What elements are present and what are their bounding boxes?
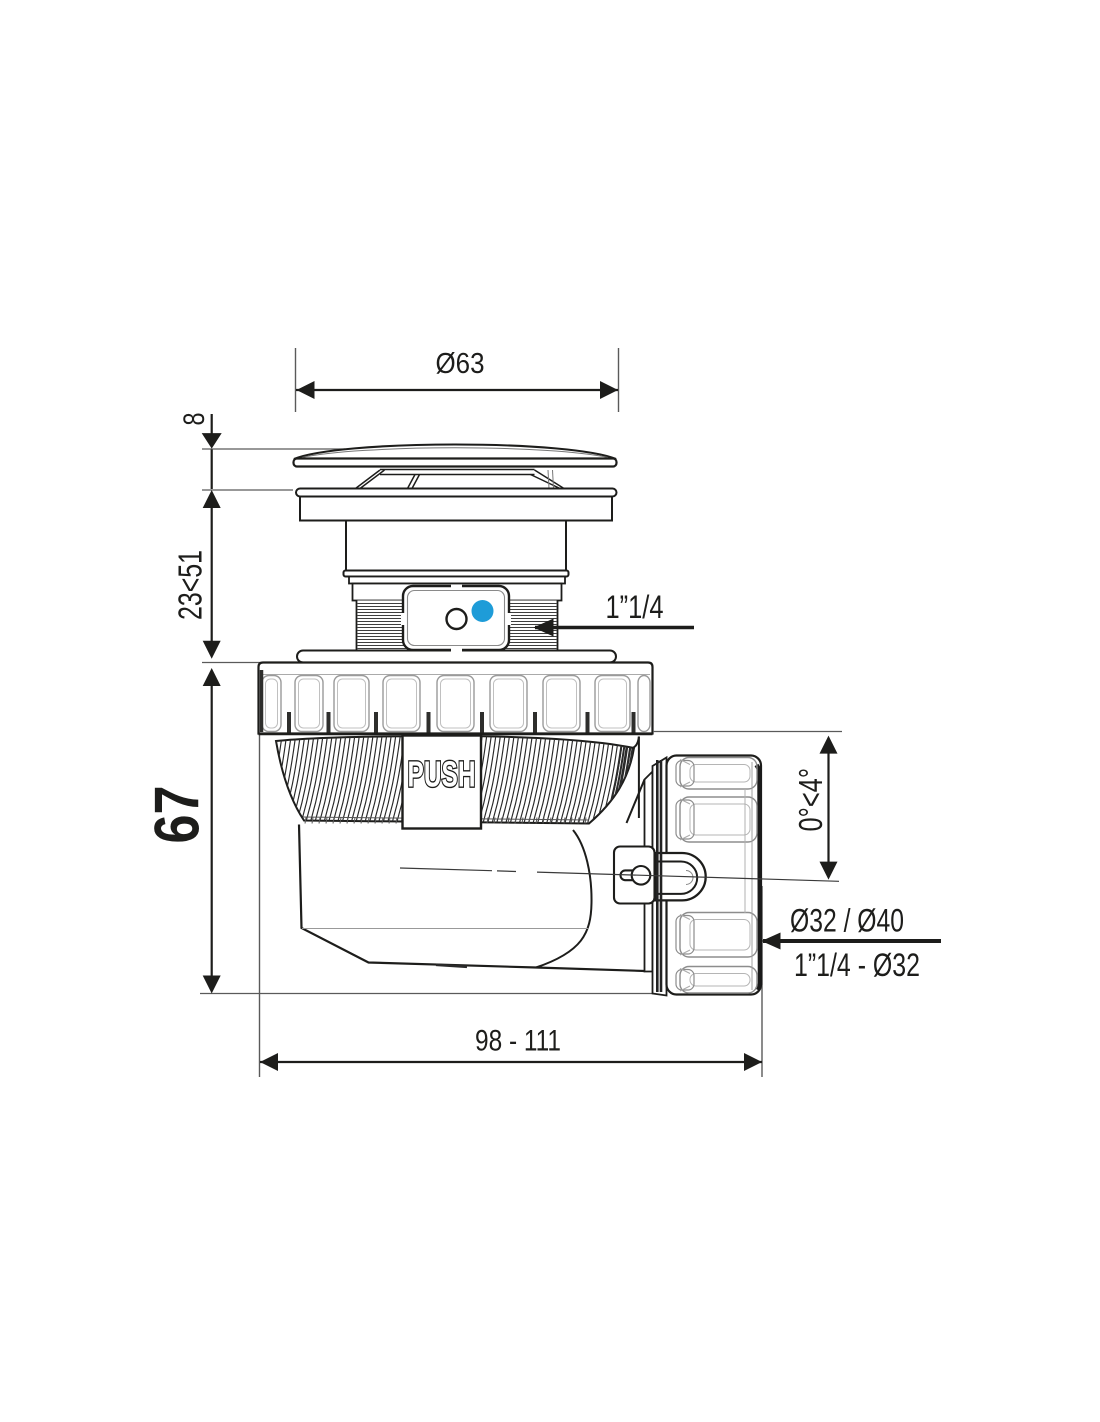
svg-text:Ø63: Ø63 — [436, 348, 485, 380]
svg-text:98 - 111: 98 - 111 — [475, 1025, 561, 1058]
svg-text:1”1/4: 1”1/4 — [606, 589, 664, 625]
svg-text:67: 67 — [143, 786, 213, 844]
svg-text:8: 8 — [178, 413, 211, 426]
svg-text:23<51: 23<51 — [172, 550, 209, 620]
svg-text:Ø32 / Ø40: Ø32 / Ø40 — [790, 903, 904, 939]
svg-text:0°<4°: 0°<4° — [792, 768, 829, 832]
svg-text:1”1/4 - Ø32: 1”1/4 - Ø32 — [794, 947, 920, 983]
svg-text:PUSH: PUSH — [408, 754, 476, 795]
